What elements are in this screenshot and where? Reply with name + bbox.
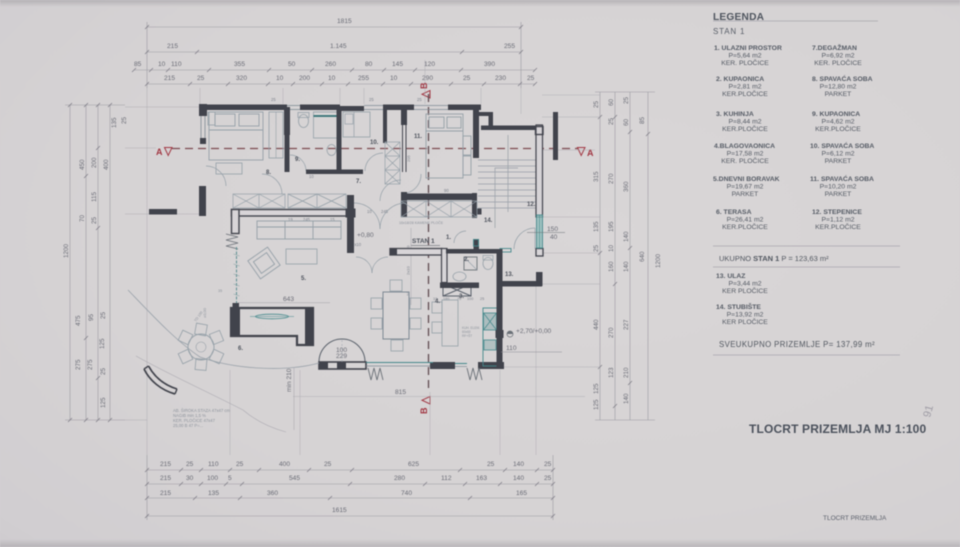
svg-text:3.: 3. xyxy=(459,294,464,300)
svg-text:50: 50 xyxy=(288,61,296,68)
svg-text:625: 625 xyxy=(408,461,419,468)
svg-text:390: 390 xyxy=(484,61,495,68)
svg-text:A: A xyxy=(156,147,163,157)
svg-text:270: 270 xyxy=(608,173,615,184)
svg-text:9.: 9. xyxy=(295,157,300,163)
svg-text:70: 70 xyxy=(79,214,86,222)
svg-text:5: 5 xyxy=(228,475,232,482)
svg-text:B: B xyxy=(419,407,429,414)
svg-text:P=1,12 m2: P=1,12 m2 xyxy=(821,217,854,224)
svg-text:360: 360 xyxy=(623,181,630,192)
svg-text:1615: 1615 xyxy=(332,507,347,514)
svg-text:25: 25 xyxy=(369,97,374,102)
svg-text:315: 315 xyxy=(593,171,600,182)
svg-text:135: 135 xyxy=(111,117,118,128)
svg-text:KER PLOČICE: KER PLOČICE xyxy=(722,286,768,295)
svg-text:7.: 7. xyxy=(356,179,361,185)
svg-text:2. KUPAONICA: 2. KUPAONICA xyxy=(716,76,764,83)
svg-text:25: 25 xyxy=(593,100,600,108)
svg-text:210: 210 xyxy=(623,367,630,378)
svg-text:25: 25 xyxy=(121,116,128,124)
svg-text:PARKET: PARKET xyxy=(825,91,852,98)
svg-text:25: 25 xyxy=(324,461,332,468)
svg-text:140: 140 xyxy=(623,393,630,404)
svg-text:1.: 1. xyxy=(446,235,451,241)
svg-text:3. KUHINJA: 3. KUHINJA xyxy=(716,111,754,118)
svg-text:12. STEPENICE: 12. STEPENICE xyxy=(812,209,862,216)
svg-text:270: 270 xyxy=(608,327,615,338)
svg-text:13. ULAZ: 13. ULAZ xyxy=(716,273,745,280)
svg-text:RF+ŠT: RF+ŠT xyxy=(462,333,472,338)
svg-text:min 210: min 210 xyxy=(286,368,293,392)
svg-text:10: 10 xyxy=(276,75,284,82)
svg-text:90: 90 xyxy=(444,188,449,193)
svg-text:P=17,58 m2: P=17,58 m2 xyxy=(727,151,764,158)
svg-text:245: 245 xyxy=(381,209,389,214)
svg-text:TLOCRT PRIZEMLJA: TLOCRT PRIZEMLJA xyxy=(823,515,887,522)
svg-text:205: 205 xyxy=(406,155,411,162)
svg-text:643: 643 xyxy=(283,296,294,303)
svg-text:740: 740 xyxy=(401,490,412,497)
svg-text:163: 163 xyxy=(476,475,487,482)
svg-text:P=2,81 m2: P=2,81 m2 xyxy=(728,84,761,91)
svg-text:85: 85 xyxy=(639,116,646,124)
svg-text:P=5,64 m2: P=5,64 m2 xyxy=(728,53,761,60)
svg-text:140: 140 xyxy=(513,461,524,468)
svg-text:10: 10 xyxy=(158,61,166,68)
svg-text:280: 280 xyxy=(394,475,405,482)
svg-text:140: 140 xyxy=(513,475,524,482)
svg-text:475: 475 xyxy=(75,315,82,326)
svg-text:2.: 2. xyxy=(464,257,469,263)
svg-text:STAN 1: STAN 1 xyxy=(412,238,435,245)
svg-text:10: 10 xyxy=(328,75,336,82)
svg-text:SVEUKUPNO PRIZEMLJE P= 137,9: SVEUKUPNO PRIZEMLJE P= 137,99 m² xyxy=(719,340,875,349)
svg-text:PARKET: PARKET xyxy=(825,158,852,165)
svg-text:1.145: 1.145 xyxy=(330,43,347,50)
svg-text:215: 215 xyxy=(160,490,171,497)
svg-text:P=26,41 m2: P=26,41 m2 xyxy=(727,217,764,224)
svg-text:320: 320 xyxy=(236,75,247,82)
svg-text:25,00 B 47 P=...: 25,00 B 47 P=... xyxy=(173,423,203,428)
svg-text:A: A xyxy=(587,148,594,158)
svg-text:215: 215 xyxy=(167,43,178,50)
svg-text:PARKET: PARKET xyxy=(732,191,759,198)
svg-text:440: 440 xyxy=(593,319,600,330)
svg-text:40: 40 xyxy=(550,234,558,241)
svg-text:PARKET: PARKET xyxy=(825,191,852,198)
svg-text:640: 640 xyxy=(639,251,646,262)
svg-text:145: 145 xyxy=(392,61,403,68)
svg-text:P=6,92 m2: P=6,92 m2 xyxy=(821,53,854,60)
svg-text:125: 125 xyxy=(593,383,600,394)
svg-text:30: 30 xyxy=(186,475,194,482)
svg-text:5.DNEVNI BORAVAK: 5.DNEVNI BORAVAK xyxy=(713,176,780,183)
svg-text:25: 25 xyxy=(91,216,98,224)
svg-text:P=3,44 m2: P=3,44 m2 xyxy=(728,281,761,288)
svg-text:100: 100 xyxy=(207,475,218,482)
svg-text:11. SPAVAĆA SOBA: 11. SPAVAĆA SOBA xyxy=(810,174,874,183)
svg-text:12.: 12. xyxy=(527,202,536,208)
svg-text:10: 10 xyxy=(309,174,314,179)
svg-text:275: 275 xyxy=(75,359,82,370)
svg-text:KER.PLOČICE: KER.PLOČICE xyxy=(722,89,768,98)
svg-text:10: 10 xyxy=(390,75,398,82)
svg-text:355: 355 xyxy=(234,61,245,68)
svg-text:KER. PLOČICE: KER. PLOČICE xyxy=(814,58,862,67)
svg-text:135: 135 xyxy=(208,490,219,497)
svg-text:5.: 5. xyxy=(301,276,306,282)
svg-text:4.BLAGOVAONICA: 4.BLAGOVAONICA xyxy=(714,143,775,150)
svg-text:60: 60 xyxy=(608,98,615,106)
svg-text:25: 25 xyxy=(608,117,615,125)
svg-text:400: 400 xyxy=(103,159,110,170)
svg-text:290: 290 xyxy=(422,75,433,82)
svg-text:13.: 13. xyxy=(505,272,514,278)
svg-text:6. TERASA: 6. TERASA xyxy=(716,209,752,216)
svg-text:10. SPAVAĆA SOBA: 10. SPAVAĆA SOBA xyxy=(810,141,874,150)
svg-text:125: 125 xyxy=(593,399,600,410)
svg-text:110: 110 xyxy=(506,345,517,352)
svg-text:110: 110 xyxy=(171,61,182,68)
svg-text:125: 125 xyxy=(99,338,106,349)
svg-text:25: 25 xyxy=(417,97,422,102)
svg-text:25: 25 xyxy=(623,96,630,104)
svg-text:25: 25 xyxy=(236,461,244,468)
svg-text:8. SPAVAĆA SOBA: 8. SPAVAĆA SOBA xyxy=(812,74,873,83)
svg-text:25: 25 xyxy=(100,311,107,319)
svg-text:135: 135 xyxy=(593,221,600,232)
svg-text:1200: 1200 xyxy=(63,243,70,258)
svg-text:215: 215 xyxy=(160,475,171,482)
svg-text:2x10: 2x10 xyxy=(406,266,411,275)
svg-text:+0,80: +0,80 xyxy=(357,232,374,239)
svg-text:1815: 1815 xyxy=(337,18,352,25)
svg-text:260: 260 xyxy=(325,61,336,68)
svg-text:227: 227 xyxy=(623,319,630,330)
svg-text:25: 25 xyxy=(544,475,552,482)
svg-text:9. KUPAONICA: 9. KUPAONICA xyxy=(812,111,860,118)
svg-text:125: 125 xyxy=(100,397,107,408)
svg-text:85: 85 xyxy=(134,61,142,68)
svg-text:60: 60 xyxy=(623,118,630,126)
svg-text:P=12,80 m2: P=12,80 m2 xyxy=(820,84,857,91)
svg-text:25: 25 xyxy=(487,461,495,468)
svg-text:25: 25 xyxy=(544,461,552,468)
svg-text:110: 110 xyxy=(208,461,219,468)
svg-text:115: 115 xyxy=(91,191,98,202)
svg-text:229: 229 xyxy=(336,353,347,360)
svg-text:11.: 11. xyxy=(414,134,422,140)
svg-text:1200: 1200 xyxy=(655,253,662,268)
svg-text:815: 815 xyxy=(395,389,406,396)
svg-text:25: 25 xyxy=(186,461,194,468)
svg-text:275: 275 xyxy=(87,359,94,370)
svg-text:400: 400 xyxy=(279,461,290,468)
svg-text:255: 255 xyxy=(358,75,369,82)
svg-text:14. STUBIŠTE: 14. STUBIŠTE xyxy=(716,302,761,311)
svg-text:200: 200 xyxy=(299,75,310,82)
svg-text:255: 255 xyxy=(504,43,515,50)
svg-text:25: 25 xyxy=(100,367,107,375)
svg-text:6.: 6. xyxy=(238,346,243,352)
svg-text:P=10,20 m2: P=10,20 m2 xyxy=(820,184,857,191)
svg-text:KER.PLOČICE: KER.PLOČICE xyxy=(815,222,861,231)
svg-text:140: 140 xyxy=(623,261,630,272)
svg-text:100: 100 xyxy=(467,297,473,301)
svg-text:P=13,92 m2: P=13,92 m2 xyxy=(727,312,764,319)
svg-text:10.: 10. xyxy=(370,140,379,146)
svg-text:P=19,67 m2: P=19,67 m2 xyxy=(727,184,764,191)
svg-text:14.: 14. xyxy=(484,218,493,224)
svg-text:STAN 1: STAN 1 xyxy=(713,27,745,36)
svg-text:215: 215 xyxy=(164,75,175,82)
svg-text:195: 195 xyxy=(608,221,615,232)
svg-text:KER.PLOČICE: KER.PLOČICE xyxy=(815,124,861,133)
svg-text:360: 360 xyxy=(267,490,278,497)
svg-text:120: 120 xyxy=(424,61,435,68)
svg-text:25: 25 xyxy=(463,75,471,82)
svg-text:KER PLOČICE: KER PLOČICE xyxy=(722,317,768,326)
svg-text:KER.PLOČICE: KER.PLOČICE xyxy=(722,124,768,133)
svg-text:TLOCRT PRIZEMLJA MJ 1:100: TLOCRT PRIZEMLJA MJ 1:100 xyxy=(749,422,927,436)
svg-text:KER. PLOČICE: KER. PLOČICE xyxy=(721,156,769,165)
svg-text:25: 25 xyxy=(480,297,484,301)
svg-text:25: 25 xyxy=(271,97,276,102)
svg-text:35: 35 xyxy=(218,289,222,293)
svg-text:P=8,44 m2: P=8,44 m2 xyxy=(728,119,761,126)
svg-text:165: 165 xyxy=(516,490,527,497)
svg-text:10: 10 xyxy=(608,244,615,252)
svg-text:1. ULAZNI PROSTOR: 1. ULAZNI PROSTOR xyxy=(714,45,782,52)
svg-text:25: 25 xyxy=(197,75,205,82)
svg-text:KER. PLOČICE: KER. PLOČICE xyxy=(721,58,769,67)
svg-text:25: 25 xyxy=(527,75,535,82)
svg-text:150: 150 xyxy=(547,226,558,233)
svg-text:7.DEGAŽMAN: 7.DEGAŽMAN xyxy=(812,43,857,52)
svg-text:200: 200 xyxy=(91,157,98,168)
svg-text:4.: 4. xyxy=(435,299,440,305)
svg-text:230: 230 xyxy=(495,75,506,82)
svg-text:P=4,62 m2: P=4,62 m2 xyxy=(821,119,854,126)
svg-text:215: 215 xyxy=(160,461,171,468)
svg-text:16x18/28 KAMENE PLOČE: 16x18/28 KAMENE PLOČE xyxy=(399,220,444,225)
svg-text:95: 95 xyxy=(88,313,95,321)
svg-text:112: 112 xyxy=(441,475,452,482)
svg-text:450: 450 xyxy=(79,159,86,170)
svg-text:B: B xyxy=(419,82,429,89)
svg-text:P=6,12 m2: P=6,12 m2 xyxy=(821,151,854,158)
svg-text:KER.PLOČICE: KER.PLOČICE xyxy=(722,222,768,231)
svg-text:+2,70/+0,00: +2,70/+0,00 xyxy=(516,328,552,335)
svg-text:25: 25 xyxy=(593,244,600,252)
svg-text:80: 80 xyxy=(365,61,373,68)
svg-text:8.: 8. xyxy=(266,170,271,176)
svg-text:UKUPNO STAN 1 P = 123,63 m²: UKUPNO STAN 1 P = 123,63 m² xyxy=(719,254,829,263)
svg-text:140: 140 xyxy=(623,231,630,242)
svg-text:123: 123 xyxy=(608,367,615,378)
svg-text:160: 160 xyxy=(608,261,615,272)
svg-text:545: 545 xyxy=(289,475,300,482)
